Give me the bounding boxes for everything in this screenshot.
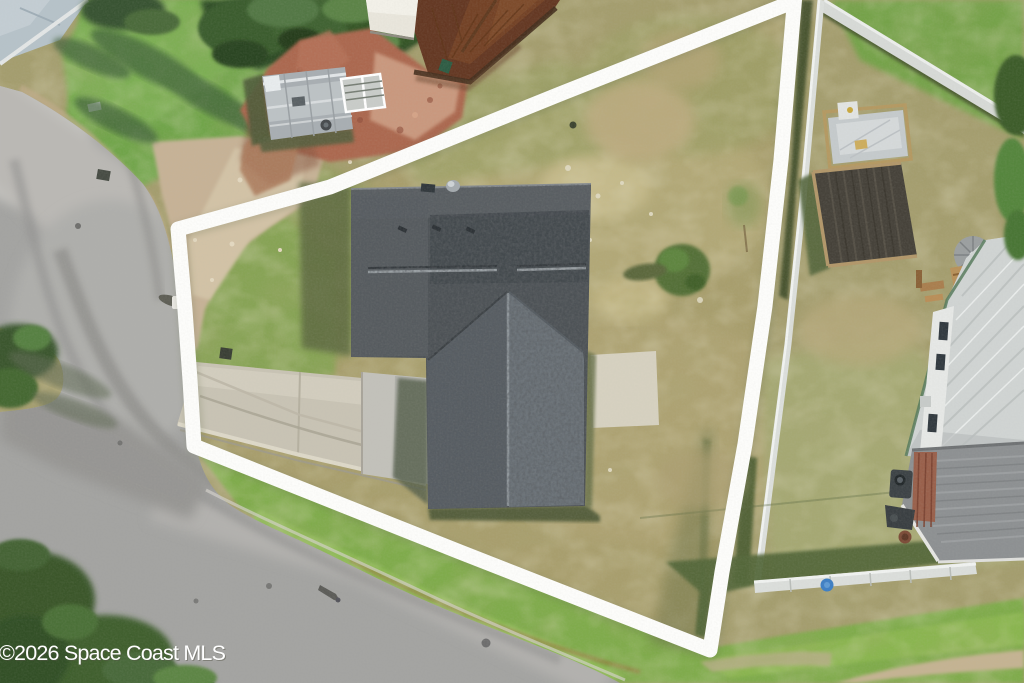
svg-text:©2026 Space Coast MLS: ©2026 Space Coast MLS bbox=[0, 641, 226, 665]
